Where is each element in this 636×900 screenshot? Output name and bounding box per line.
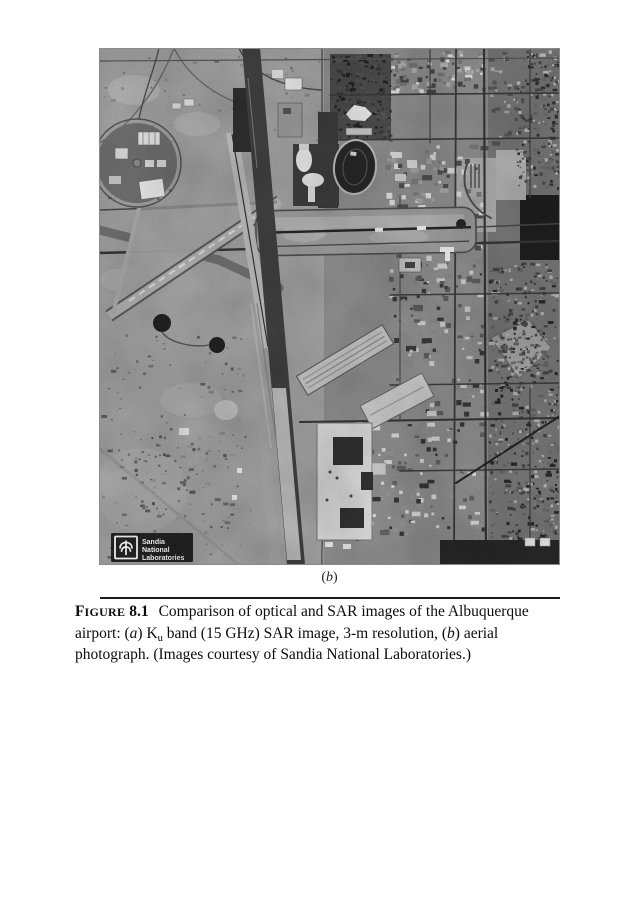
sublabel-letter: b: [326, 570, 333, 585]
aerial-photo-canvas: Sandia National Laboratories: [99, 48, 560, 565]
document-page: Sandia National Laboratories (b) FIGURE …: [0, 0, 636, 900]
figure-number: 8.1: [129, 603, 148, 620]
caption-line2-post: ) aerial: [455, 625, 498, 642]
figure-caption: FIGURE 8.1Comparison of optical and SAR …: [75, 601, 575, 665]
caption-letter-b: b: [447, 625, 455, 642]
caption-line2: airport: (a) Ku band (15 GHz) SAR image,…: [75, 625, 498, 642]
photo-sublabel: (b): [99, 570, 560, 586]
caption-line1: Comparison of optical and SAR images of …: [159, 603, 529, 620]
photo-grain-light-overlay: [99, 48, 560, 565]
caption-line2-pre: airport: (: [75, 625, 130, 642]
caption-rule: [100, 597, 560, 599]
caption-line3: photograph. (Images courtesy of Sandia N…: [75, 646, 471, 663]
caption-line2-mid1: ) K: [137, 625, 157, 642]
figure-word-smallcaps: IGURE: [84, 605, 125, 619]
figure-label: FIGURE 8.1: [75, 603, 159, 620]
caption-line2-mid2: band (15 GHz) SAR image, 3-m resolution,…: [163, 625, 447, 642]
sublabel-close-paren: ): [333, 570, 338, 585]
aerial-photograph: Sandia National Laboratories: [99, 48, 560, 565]
